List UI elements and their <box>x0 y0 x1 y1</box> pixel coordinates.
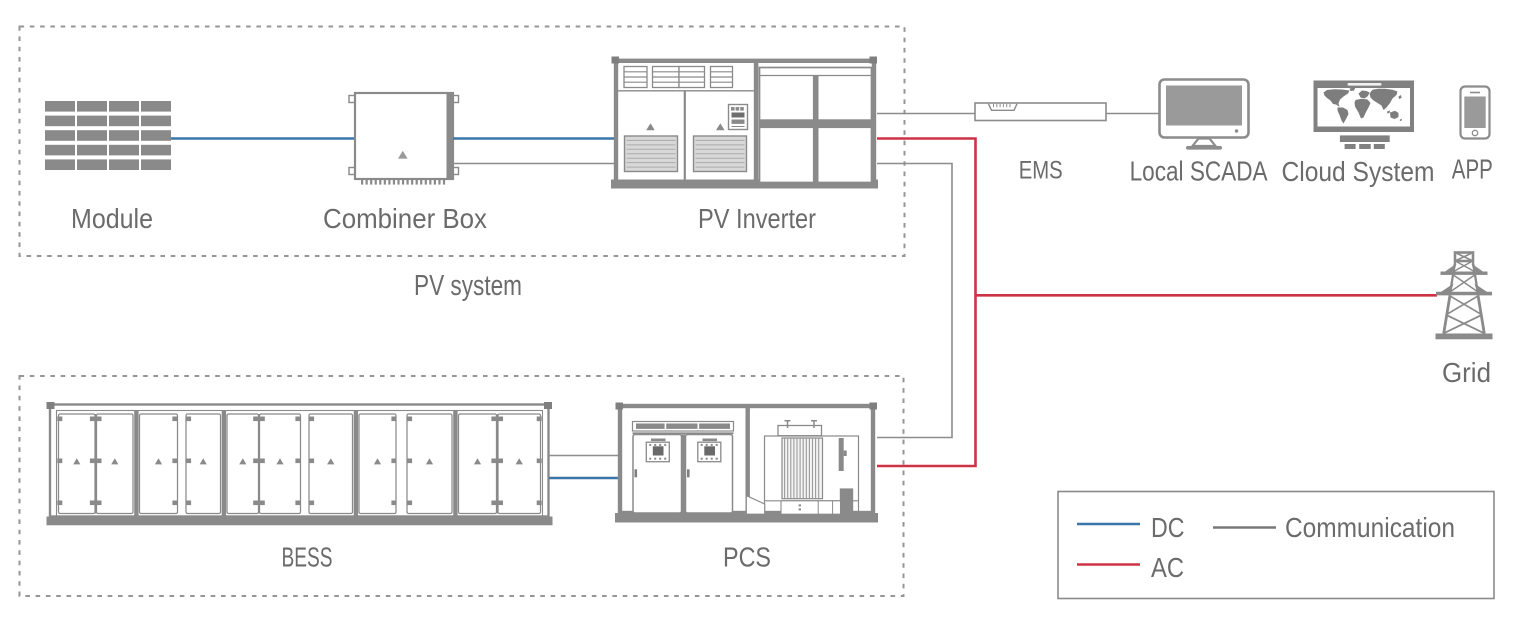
svg-text:PCS: PCS <box>723 542 771 573</box>
svg-text:AC: AC <box>1151 552 1184 583</box>
svg-text:DC: DC <box>1151 512 1185 543</box>
svg-text:Cloud System: Cloud System <box>1282 156 1435 187</box>
svg-text:PV system: PV system <box>414 270 522 302</box>
svg-text:APP: APP <box>1452 154 1493 185</box>
svg-text:Communication: Communication <box>1285 512 1455 543</box>
svg-text:Grid: Grid <box>1442 357 1491 388</box>
svg-text:Combiner Box: Combiner Box <box>323 203 487 234</box>
svg-text:Local SCADA: Local SCADA <box>1130 156 1268 187</box>
svg-text:EMS: EMS <box>1019 157 1063 185</box>
svg-text:PV Inverter: PV Inverter <box>698 203 816 234</box>
svg-text:BESS: BESS <box>282 542 333 573</box>
svg-text:Module: Module <box>71 203 153 234</box>
